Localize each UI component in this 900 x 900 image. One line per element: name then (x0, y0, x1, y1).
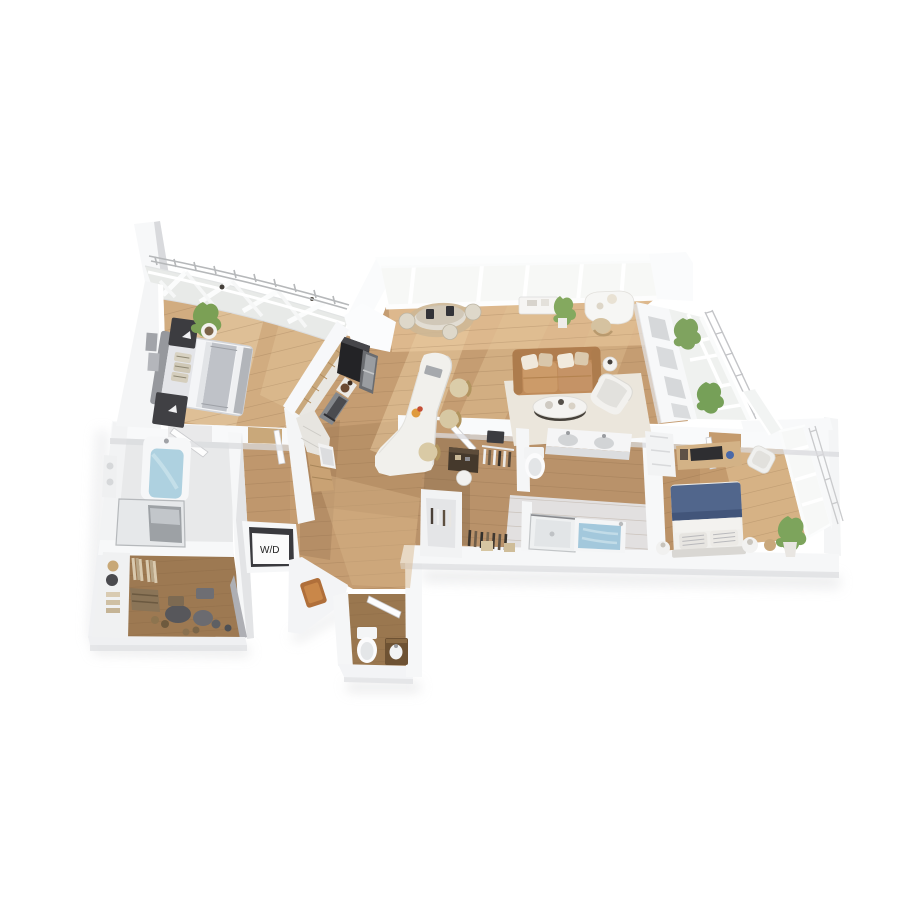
svg-text:W/D: W/D (260, 545, 279, 556)
